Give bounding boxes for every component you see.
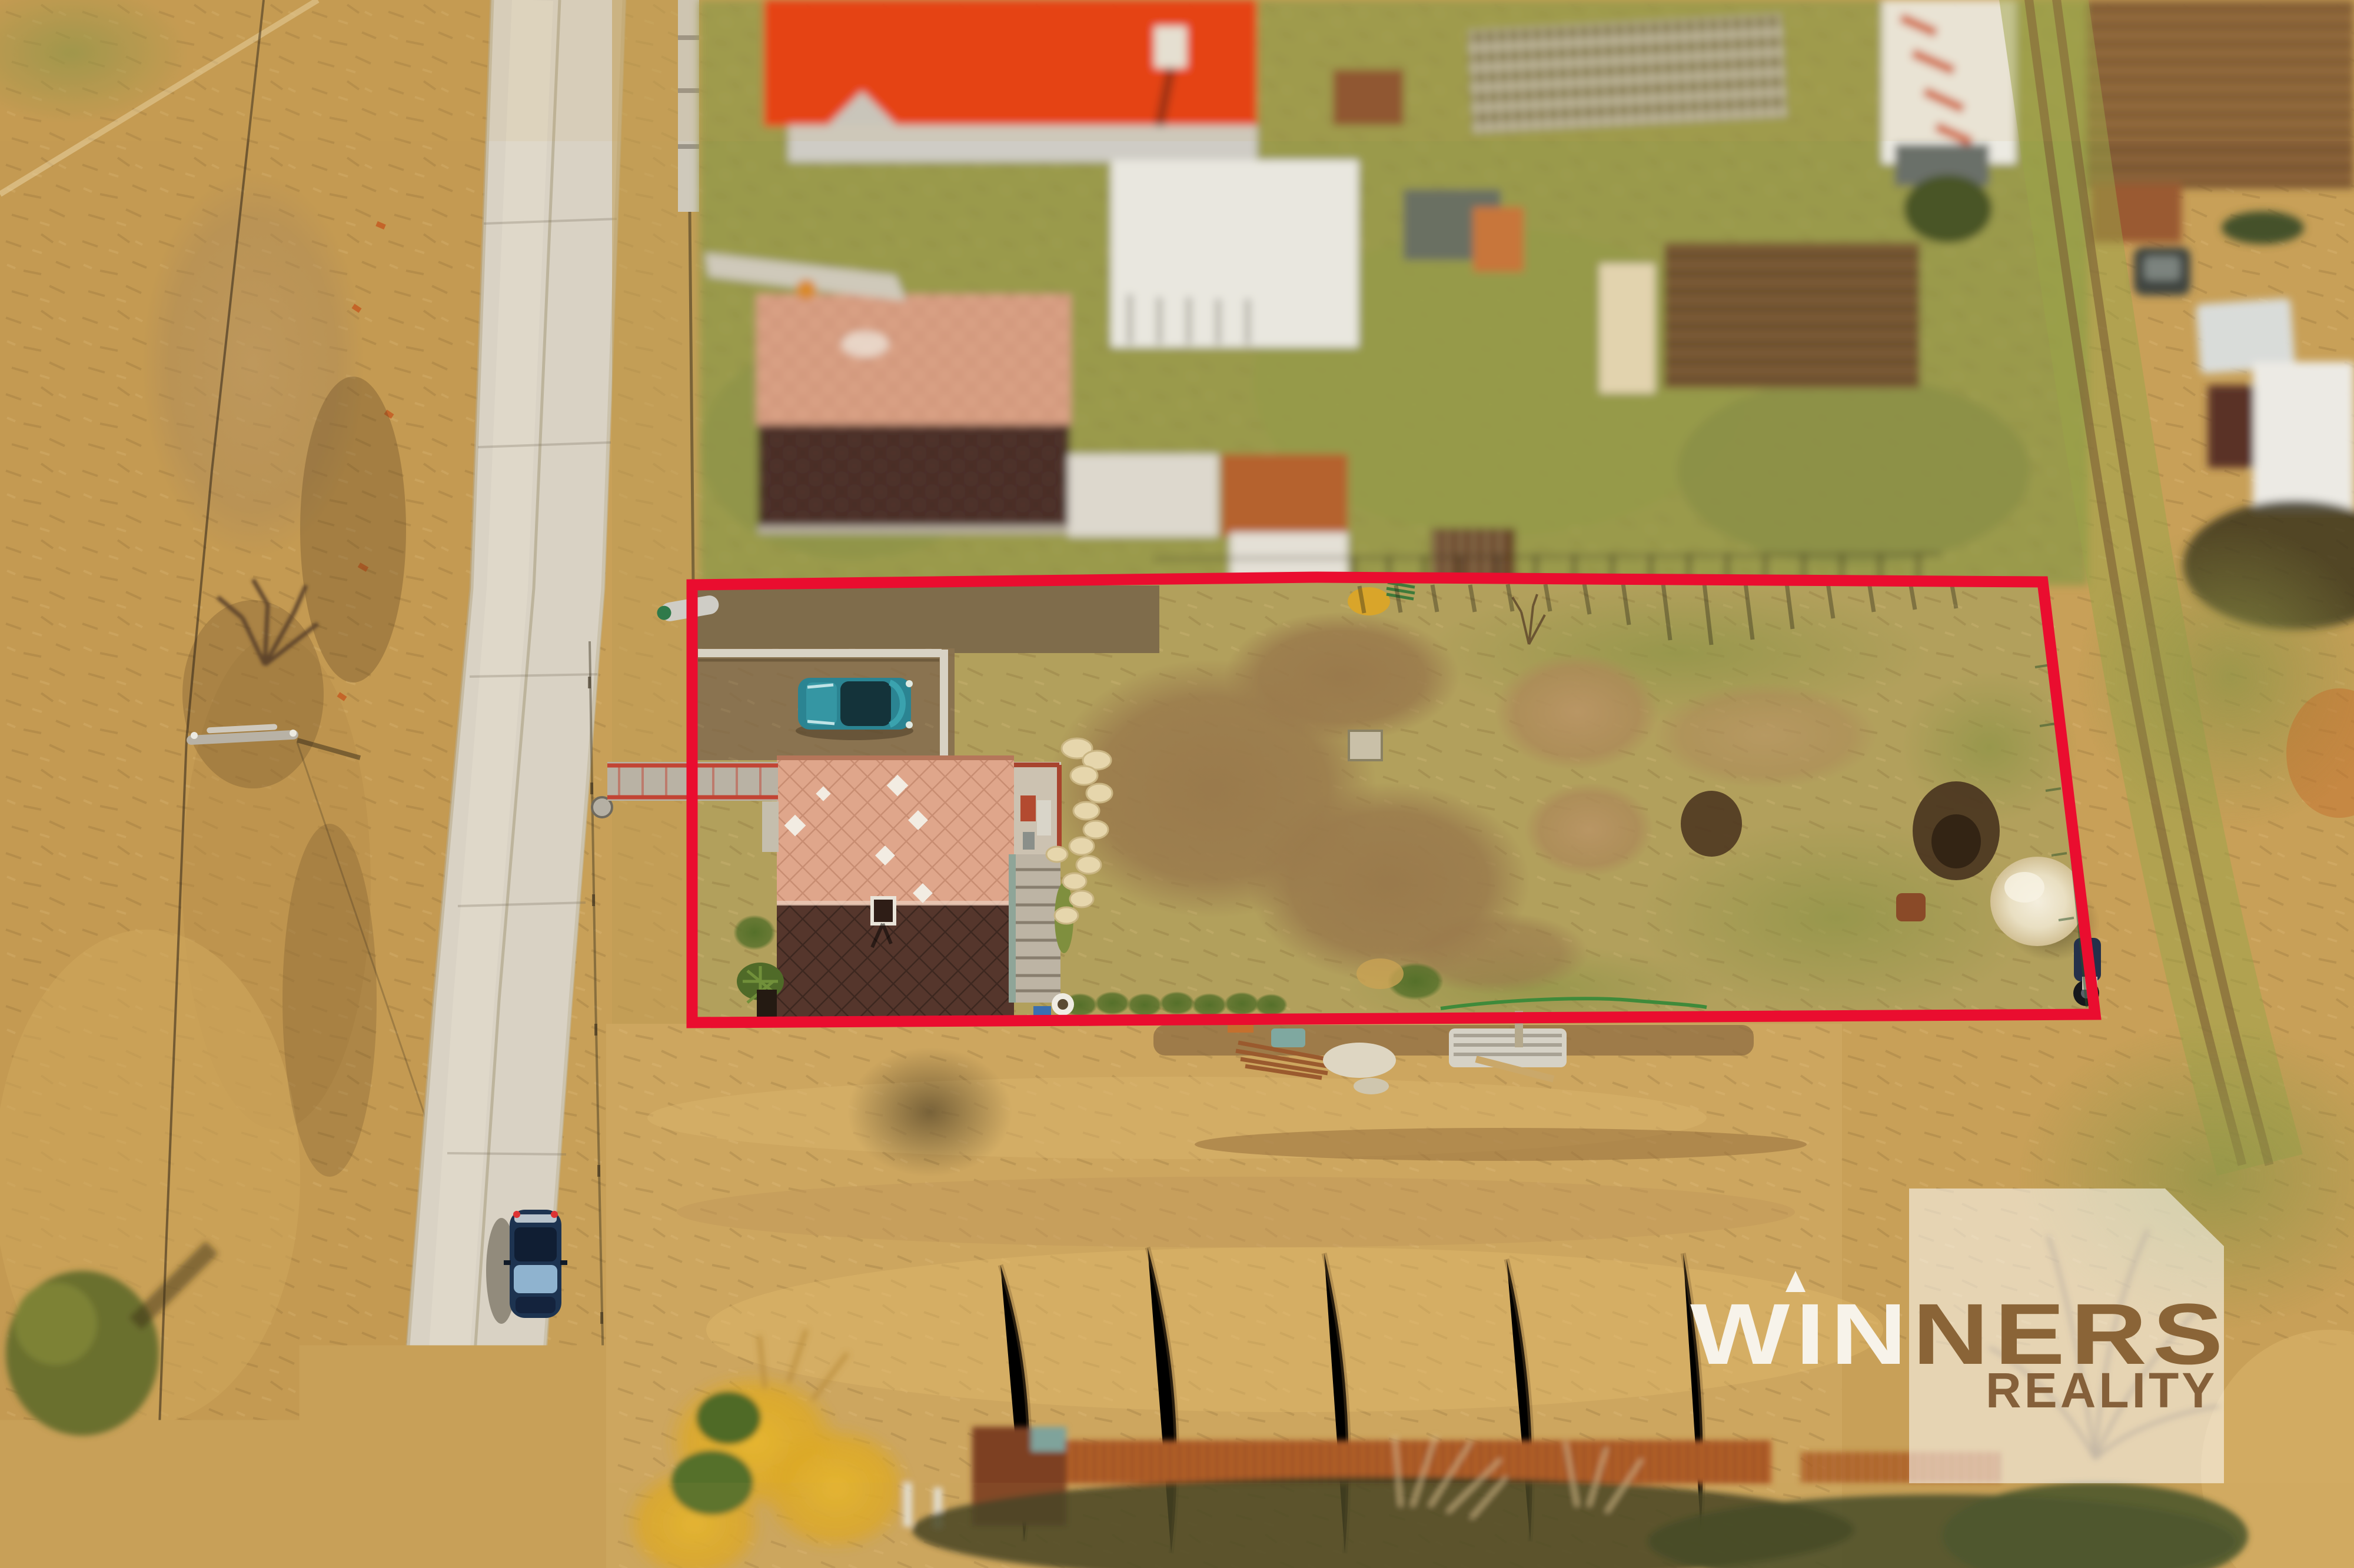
plot-interior: [692, 577, 2101, 1033]
tiltshift-top: [0, 0, 2354, 141]
rusty-barrel: [1896, 893, 1926, 921]
orange-container: [1221, 454, 1348, 537]
orange-tile-shed: [1473, 207, 1524, 272]
cellar-entry: [757, 990, 777, 1018]
main-house: [777, 755, 1014, 1020]
utility-box: [1349, 731, 1382, 760]
pit-1: [1681, 791, 1742, 857]
terrace: [1014, 762, 1061, 856]
white-garage: [1111, 160, 1358, 347]
cream-path: [1600, 264, 1655, 393]
parked-car: [796, 678, 913, 740]
dark-trees: [1904, 175, 1992, 243]
north-dirt-strip: [694, 585, 1159, 653]
tiltshift-bottom: [0, 1483, 2354, 1568]
conifer: [696, 1391, 761, 1444]
yellow-bush: [1348, 587, 1390, 615]
house-chimney: [872, 898, 895, 924]
driving-car: [486, 1210, 567, 1324]
white-shed: [1068, 454, 1218, 537]
white-barn-roof: [2253, 362, 2354, 511]
sand-pile: [1990, 857, 2084, 946]
aerial-photo: WINNERS REALITY: [0, 0, 2354, 1568]
hedge-blob: [2222, 211, 2304, 244]
barn-dark-wall: [2208, 385, 2254, 468]
watermark-word2: REALITY: [1986, 1363, 2217, 1418]
